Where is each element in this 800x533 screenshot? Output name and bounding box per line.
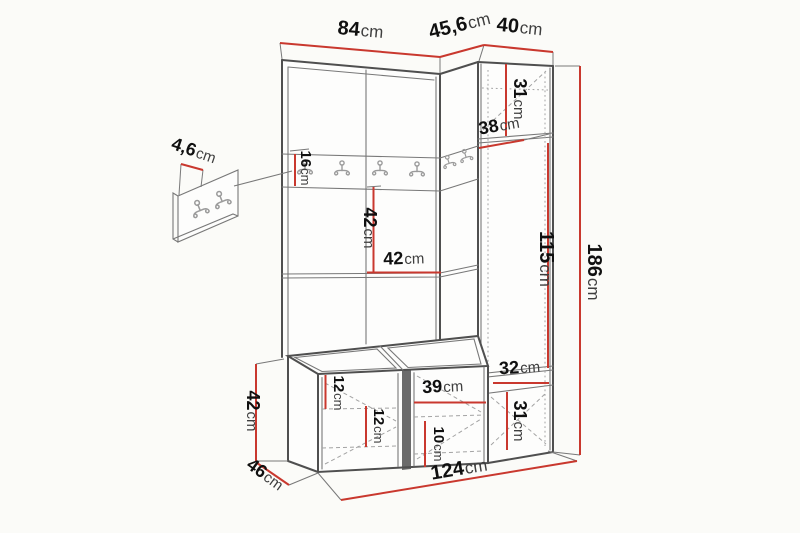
bench <box>288 336 488 472</box>
dim-label-bench-door-width: 39cm <box>422 375 464 397</box>
bench-door-gap <box>402 370 411 470</box>
dim-label-cab-door-height: 115cm <box>535 231 557 287</box>
dim-label-bench-gap-right: 10cm <box>430 426 447 461</box>
dim-label-bench-gap-top: 12cm <box>330 375 347 410</box>
corner-face <box>440 62 478 344</box>
dim-label-cab-niche-width: 32cm <box>498 356 540 379</box>
dim-label-rail-height: 16cm <box>297 150 314 185</box>
hall-unit-dimension-diagram: 84cm 45,6cm 40cm 4,6cm 16cm 42cm 42cm 38… <box>0 0 800 533</box>
bench-side-face <box>288 356 318 472</box>
dim-label-total-height: 186cm <box>583 243 605 300</box>
dim-label-niche-height: 42cm <box>360 207 380 248</box>
dim-label-cab-bottom-height: 31cm <box>510 400 530 441</box>
dim-label-cab-top-height: 31cm <box>510 78 530 119</box>
diagram-canvas: 84cm 45,6cm 40cm 4,6cm 16cm 42cm 42cm 38… <box>0 0 800 533</box>
dim-label-niche-width: 42cm <box>383 247 425 268</box>
dim-label-bench-height: 42cm <box>243 390 263 431</box>
dim-label-bench-gap-bottom: 12cm <box>370 408 387 443</box>
